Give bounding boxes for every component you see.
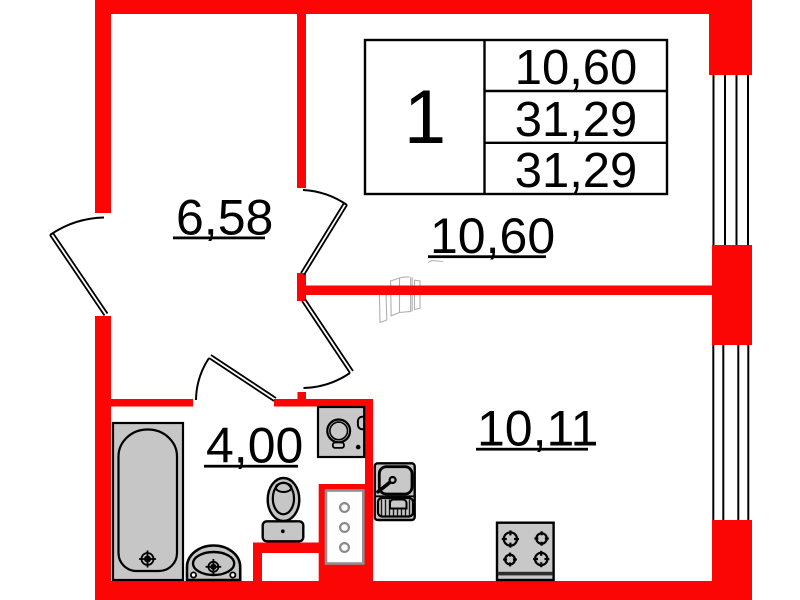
svg-text:31,29: 31,29 <box>515 93 638 147</box>
svg-text:1: 1 <box>404 75 446 160</box>
svg-text:10,60: 10,60 <box>515 41 638 95</box>
svg-text:31,29: 31,29 <box>515 144 638 198</box>
